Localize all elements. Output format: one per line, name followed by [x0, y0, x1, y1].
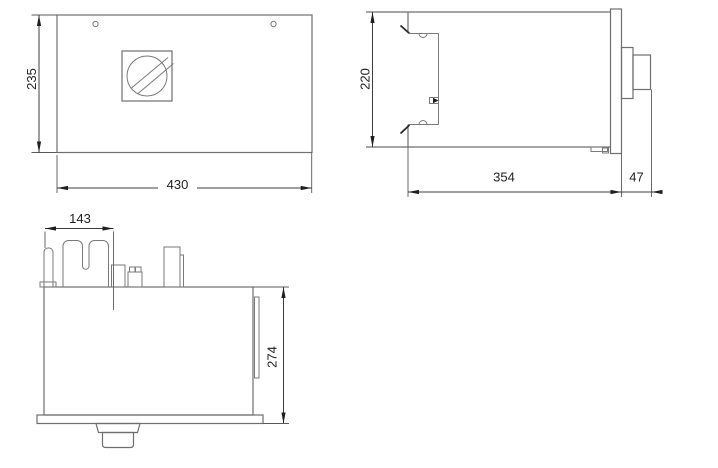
dim-front-height-value: 235 [24, 68, 39, 90]
dim-side-depth: 354 [408, 154, 622, 198]
dim-side-depth-value: 354 [493, 170, 515, 185]
dim-terminal-width-value: 143 [69, 211, 91, 226]
screw-knob-icon [122, 51, 174, 101]
technical-drawing: 235 430 [0, 0, 718, 468]
bottom-plug [96, 424, 140, 448]
bottom-body [44, 287, 253, 415]
dim-side-height-value: 220 [358, 68, 373, 90]
dim-front-height: 235 [24, 15, 39, 153]
terminal-1 [44, 248, 53, 287]
terminal-fork [63, 241, 109, 288]
dim-side-height: 220 [358, 12, 373, 147]
side-rail [255, 297, 260, 378]
bottom-view: 143 274 [37, 211, 289, 447]
mounting-hole-left [93, 21, 98, 26]
dim-terminal-width: 143 [45, 211, 114, 310]
dim-bottom-height: 274 [265, 287, 284, 424]
dim-side-front-depth: 47 [622, 90, 663, 198]
dim-bottom-height-value: 274 [265, 346, 280, 368]
front-view: 235 430 [24, 15, 312, 193]
terminal-4 [128, 272, 142, 287]
terminal-1-foot [40, 282, 56, 287]
terminal-block [40, 241, 184, 288]
dim-side-front-depth-value: 47 [629, 170, 643, 185]
knob-collar [622, 48, 634, 99]
mounting-hole-right [271, 21, 276, 26]
din-clip-bracket [408, 34, 439, 125]
terminal-5-lip [180, 255, 184, 287]
knob [633, 55, 651, 90]
dim-front-width: 430 [57, 153, 312, 194]
base-plate [37, 415, 263, 424]
front-bezel [611, 9, 622, 154]
side-view: 220 354 47 [358, 9, 662, 197]
terminal-4-screw-b [136, 267, 142, 272]
drawing-svg: 235 430 [0, 0, 718, 468]
terminal-5 [164, 247, 180, 287]
terminal-4-screw-a [130, 267, 136, 272]
dim-front-width-value: 430 [167, 177, 189, 192]
front-body [57, 15, 312, 153]
